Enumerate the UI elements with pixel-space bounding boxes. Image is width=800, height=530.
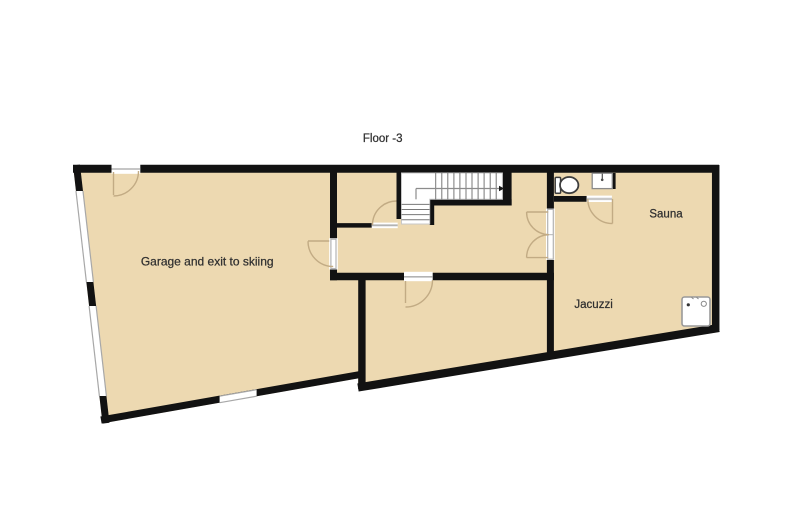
svg-text:Floor -3: Floor -3 [363,133,403,145]
svg-text:Sauna: Sauna [649,208,683,220]
svg-text:Garage and exit to skiing: Garage and exit to skiing [141,254,274,268]
svg-text:Jacuzzi: Jacuzzi [574,299,612,311]
